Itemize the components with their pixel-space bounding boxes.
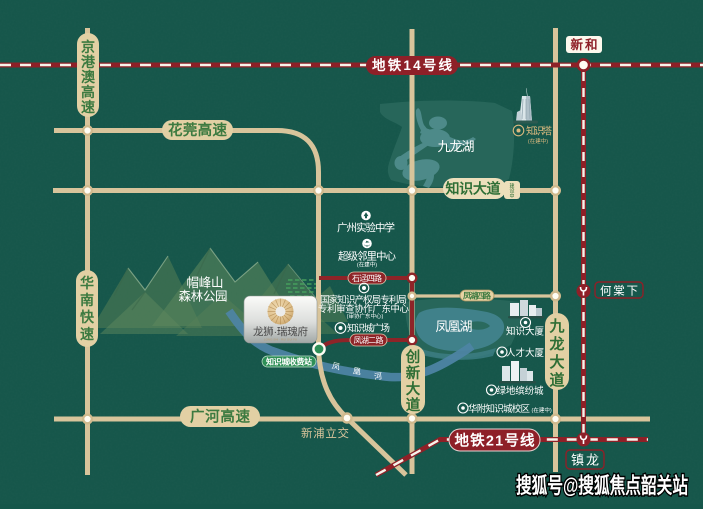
svg-text:(在建中): (在建中) [357,261,377,269]
svg-text:大: 大 [406,380,421,398]
svg-text:LONG SHI · RUI GUI FU: LONG SHI · RUI GUI FU [264,338,297,342]
svg-text:森林公园: 森林公园 [179,289,228,304]
svg-text:新浦立交: 新浦立交 [301,426,350,440]
svg-text:(审协广东中心): (审协广东中心) [347,312,384,320]
svg-text:新: 新 [406,364,421,382]
svg-text:快: 快 [80,309,95,325]
svg-text:搜狐号@搜狐焦点韶关站: 搜狐号@搜狐焦点韶关站 [516,473,688,498]
svg-text:地铁14号线: 地铁14号线 [372,57,453,73]
svg-text:九龙湖: 九龙湖 [438,139,475,154]
svg-text:帽峰山: 帽峰山 [187,275,224,290]
svg-text:花莞高速: 花莞高速 [168,121,228,139]
svg-text:华附知识城校区: 华附知识城校区 [468,403,530,415]
svg-text:高: 高 [81,84,95,100]
svg-text:凤湖二路: 凤湖二路 [354,335,384,345]
svg-text:河: 河 [373,371,382,382]
svg-text:广河高速: 广河高速 [190,408,251,426]
svg-text:石迳四路: 石迳四路 [352,273,382,283]
svg-text:何棠下: 何棠下 [600,285,638,298]
svg-text:港: 港 [81,54,96,70]
svg-text:凤湖四路: 凤湖四路 [463,291,492,301]
svg-text:速: 速 [80,326,94,342]
svg-text:知识大道: 知识大道 [446,181,501,197]
svg-text:(在建中): (在建中) [528,137,548,145]
svg-text:南: 南 [80,292,94,308]
svg-text:镇龙: 镇龙 [571,453,599,468]
svg-text:中: 中 [509,193,514,200]
svg-text:人才大厦: 人才大厦 [506,347,544,359]
svg-text:道: 道 [549,371,564,389]
svg-text:广州实验中学: 广州实验中学 [337,221,395,234]
svg-text:九: 九 [548,317,564,335]
svg-text:京: 京 [81,39,95,55]
svg-text:知识城广场: 知识城广场 [347,323,390,335]
svg-text:创: 创 [405,348,421,366]
svg-text:知识城收费站: 知识城收费站 [266,357,312,367]
svg-text:凰: 凰 [352,366,361,376]
svg-text:龙狮·瑞瑰府: 龙狮·瑞瑰府 [253,325,308,338]
svg-text:华: 华 [80,275,94,291]
svg-text:凤凰湖: 凤凰湖 [436,319,473,334]
svg-text:(在建中): (在建中) [532,406,552,414]
svg-text:新和: 新和 [571,37,598,52]
svg-text:大: 大 [549,353,564,371]
svg-text:绿地缤纷城: 绿地缤纷城 [497,385,544,397]
svg-text:澳: 澳 [81,69,96,85]
svg-text:超级邻里中心: 超级邻里中心 [338,250,397,263]
svg-text:知识塔: 知识塔 [526,125,552,138]
svg-text:龙: 龙 [548,335,564,353]
svg-text:知识大厦: 知识大厦 [506,326,544,338]
svg-text:速: 速 [81,99,95,115]
svg-text:地铁21号线: 地铁21号线 [455,432,536,450]
svg-text:道: 道 [406,396,421,414]
